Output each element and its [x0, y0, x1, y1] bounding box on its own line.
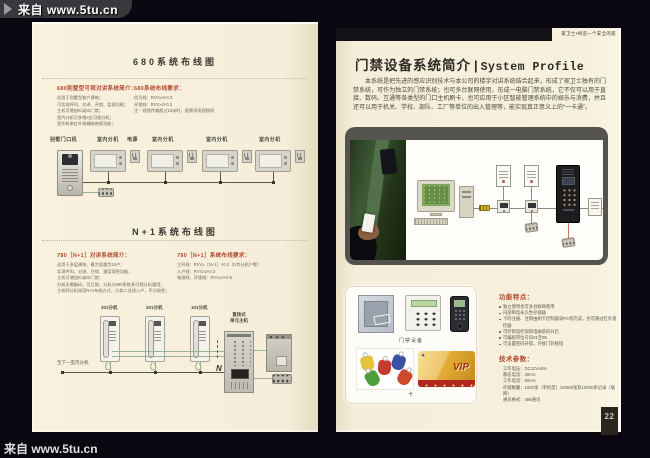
red-subtitle: 680系统布线要求： [134, 84, 254, 92]
plug [245, 157, 249, 160]
handset-screen [154, 321, 161, 326]
star-icon: ✦ [421, 353, 425, 359]
handset-buttons [154, 329, 161, 341]
power-supply [295, 150, 305, 163]
dotted-divider [42, 78, 308, 80]
monitor-stand [430, 213, 442, 216]
monitor-screen [259, 154, 282, 168]
camera-icon [62, 154, 78, 165]
junction-node [109, 371, 112, 374]
bus-note: 至下一室内分机 [57, 360, 89, 366]
junction-node [107, 181, 110, 184]
junction-node [219, 181, 222, 184]
handset-label: 201分机 [146, 305, 163, 311]
controller-terminals [527, 169, 536, 178]
knob [176, 162, 179, 165]
main-unit-label: 直按式 单元主机 [219, 312, 259, 323]
keyfob-photo [356, 348, 414, 390]
title-divider: | [471, 58, 481, 73]
keyring [398, 351, 404, 357]
features-block: 功能特点： 独立使用也可多台联网使用 内部断电永久性存储器 卡的注册、注销由刷卡… [499, 291, 620, 347]
entrance-panel [556, 165, 580, 223]
box-terminals [270, 336, 288, 338]
panel-keypad [561, 187, 576, 206]
label-indoor-monitor: 室内分机 [206, 136, 228, 143]
card-reader [525, 200, 538, 213]
text-line: 注：视频传输超过15米时，视频采用视频线 [134, 108, 254, 115]
lock-wire [254, 378, 272, 379]
red-subtitle: 780［N+1］系统布线要求： [177, 251, 297, 259]
keyring [382, 356, 387, 361]
left-page: 680系统布线图 680别墅型可视对讲系统简介： 适用于别墅型独户建筑； 可实现… [32, 22, 318, 432]
lock-wire [568, 223, 569, 238]
keypad-controller [405, 295, 441, 331]
drive-slot [462, 196, 471, 198]
label-door-station: 别墅门口机 [50, 136, 77, 143]
title-chinese: 门禁设备系统简介 [355, 58, 471, 73]
controller-terminals [499, 169, 508, 178]
unit-header [227, 334, 251, 337]
reader-led [503, 210, 505, 212]
brand-slogan: 家卫士•缔造一个安全的家 [561, 31, 616, 37]
speaker-grille [562, 169, 574, 175]
call-button [67, 185, 73, 191]
junction-node [61, 371, 64, 374]
indoor-monitor [255, 150, 291, 172]
power-supply [130, 150, 140, 163]
plug [298, 157, 302, 160]
door-controller [524, 165, 539, 187]
reader-window [500, 203, 508, 208]
knob [284, 156, 287, 159]
junction-node [164, 181, 167, 184]
unit-display [231, 369, 249, 379]
power-supply [242, 150, 252, 163]
text-line: 主机可增加IC或ID门禁； [57, 275, 177, 282]
reader-face [364, 301, 388, 327]
reader-led [531, 210, 533, 212]
text-line: 主机到分机采用N+1布线方式，分机二总线入户，不分极性； [57, 288, 177, 295]
reader-keys [454, 309, 465, 321]
intro-paragraph: 本系统是把先进的感应识别技术与本公司的楼宇对讲系统结合起来，形成了家卫士独有的门… [353, 78, 606, 112]
electric-lock [272, 374, 292, 384]
status-led [502, 180, 505, 183]
panel-slot [563, 209, 574, 211]
villa-door-station [57, 150, 83, 196]
unit-buttons [229, 339, 251, 366]
terminals [591, 202, 599, 209]
device-caption: 门禁设备 [346, 337, 476, 344]
spec-line: 通讯格式：485通讯 [499, 397, 620, 403]
watermark-bottom: 来自 www.5tu.cn [4, 440, 98, 457]
junction-node [272, 181, 275, 184]
power-wire [254, 350, 266, 351]
handset-buttons [199, 329, 206, 341]
handset-screen [109, 321, 116, 326]
door-controller [496, 165, 511, 187]
red-subtitle: 780［N+1］对讲系统简介： [57, 251, 177, 259]
header-bar [336, 28, 552, 41]
standalone-reader [450, 296, 469, 332]
text-line: 主杆线：RVV≥［N+1］×0.3［N为分机户数］ [177, 262, 297, 269]
card-reader [497, 200, 510, 213]
indoor-monitor [147, 150, 183, 172]
vip-card-photo: ✦ VIP [418, 351, 475, 387]
features-title: 功能特点： [499, 291, 620, 301]
handset-label: 101分机 [191, 305, 208, 311]
junction-node [199, 371, 202, 374]
knob [119, 156, 122, 159]
handset-label: 301分机 [101, 305, 118, 311]
electric-lock [561, 237, 575, 248]
spec-line: 存储数量：1000张（单机型）/10000张及10000条记录（联网） [499, 385, 620, 397]
bus-wire [83, 182, 273, 183]
junction-node [154, 371, 157, 374]
adapter-wire [83, 192, 98, 193]
direct-press-main-unit [224, 331, 254, 393]
vip-text: VIP [453, 362, 469, 373]
text-line: 室外机带红外线辅助夜视功能； [57, 121, 177, 128]
text-line: 电源线、开锁线：RVV≥2×0.5 [177, 275, 297, 282]
stub-wire [580, 208, 588, 209]
keyfob-red [377, 359, 391, 375]
label-line: 单元主机 [230, 318, 248, 323]
ellipsis-wires [217, 340, 218, 358]
pc-tower [459, 186, 474, 218]
reader-wire [531, 187, 532, 200]
box-panel [276, 356, 287, 366]
drive-slot [462, 191, 471, 193]
keyfob-orange [395, 368, 414, 388]
knob [231, 156, 234, 159]
handset-screen [199, 321, 206, 326]
specs-block: 技术参数： 工作电压：DC12V±5% 静态电流：30mA 工作电流：50mA … [499, 353, 620, 403]
plug [133, 157, 137, 160]
section-title-n1: N+1系统布线图 [32, 225, 318, 238]
power-supply [187, 150, 197, 163]
knob [231, 162, 234, 165]
specs-title: 技术参数： [499, 353, 620, 363]
keypad-buttons [412, 310, 436, 328]
n-wire-label: N [216, 364, 222, 373]
indoor-monitor [202, 150, 238, 172]
reader-wire [503, 187, 504, 200]
knob [119, 162, 122, 165]
metal-card-reader [358, 295, 394, 333]
catalog-spread: 来自 www.5tu.cn 680系统布线图 680别墅型可视对讲系统简介： 适… [0, 0, 650, 458]
keyring [362, 352, 368, 358]
management-computer [417, 180, 455, 212]
door-power-adapter [98, 188, 114, 197]
dotted-divider [42, 240, 308, 242]
monitor-screen [206, 154, 229, 168]
wall-reader [380, 148, 398, 174]
page-title: 门禁设备系统简介|System Profile [355, 54, 584, 75]
page-number-tab: 22 [601, 407, 618, 435]
knob [284, 162, 287, 165]
monitor-screen [151, 154, 174, 168]
feature-line: 可设置密码开锁，外接门铃按钮 [499, 341, 620, 347]
label-power: 电源 [127, 136, 138, 143]
lcd-screen [411, 300, 437, 307]
plug [190, 157, 194, 160]
reader-window [528, 203, 536, 208]
keyboard [414, 218, 448, 225]
label-line: 直按式 [232, 312, 246, 317]
card-strip [418, 380, 475, 387]
text-line: 适用于多层建筑，最大容量为24户； [57, 262, 177, 269]
watermark-tab: 来自 www.5tu.cn [0, 0, 132, 18]
text-680-wiring: 680系统布线要求： 信号线：RVV≥4×0.3 开锁线：RVV≥2×0.3 注… [134, 84, 254, 115]
camera-lens [68, 154, 72, 158]
photo-panel [345, 127, 608, 265]
rs485-converter [479, 205, 490, 211]
right-page: 家卫士•缔造一个安全的家 门禁设备系统简介|System Profile 本系统… [336, 28, 621, 432]
riser-wire [112, 356, 224, 357]
label-indoor-monitor: 室内分机 [259, 136, 281, 143]
speaker-grille [62, 168, 78, 182]
card-caption: 卡 [346, 391, 476, 398]
label-indoor-monitor: 室内分机 [152, 136, 174, 143]
label-indoor-monitor: 室内分机 [97, 136, 119, 143]
keyring [405, 366, 412, 373]
swipe-icon [373, 314, 390, 326]
text-n1-intro: 780［N+1］对讲系统简介： 适用于多层建筑，最大容量为24户； 实现呼叫、对… [57, 251, 177, 295]
electric-lock [524, 222, 538, 233]
power-controller [588, 198, 602, 216]
unit-vents [231, 382, 249, 389]
reader-screen [454, 300, 465, 307]
play-icon [4, 3, 12, 15]
watermark-text: 来自 www.5tu.cn [18, 1, 118, 18]
text-line: 信号线：RVV≥4×0.3 [134, 95, 254, 102]
monitor-screen [94, 154, 117, 168]
panel-display [562, 177, 575, 185]
feature-line: 卡的注册、注销由刷卡控制器或PC机完成，也可通过红外遥控器 [499, 316, 620, 328]
computer-screen [422, 184, 450, 206]
status-led [530, 180, 533, 183]
indoor-monitor [90, 150, 126, 172]
handset-buttons [109, 329, 116, 341]
riser-wire [112, 351, 224, 352]
lock-wire [531, 213, 532, 223]
sensor-coil [457, 323, 463, 329]
product-panel: 门禁设备 ✦ VIP 卡 [345, 286, 477, 404]
knob [176, 156, 179, 159]
card-swipe-photo [350, 140, 406, 260]
title-english: System Profile [481, 61, 585, 74]
text-n1-wiring: 780［N+1］系统布线要求： 主杆线：RVV≥［N+1］×0.3［N为分机户数… [177, 251, 297, 282]
power-box [266, 334, 292, 372]
section-title-680: 680系统布线图 [32, 55, 318, 68]
